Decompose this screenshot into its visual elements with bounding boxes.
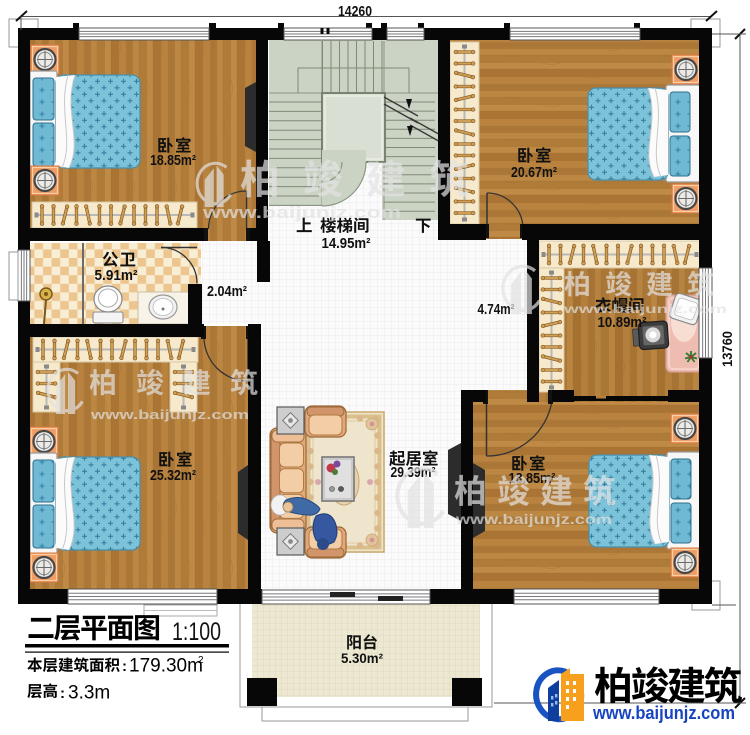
svg-text:2.04m²: 2.04m² [207,284,247,300]
svg-text:www.baijunjz.com: www.baijunjz.com [90,407,249,422]
svg-text:25.32m²: 25.32m² [150,468,196,484]
svg-text:www.baijunjz.com: www.baijunjz.com [562,302,727,316]
svg-text:1:100: 1:100 [172,618,221,646]
svg-text:www.baijunjz.com: www.baijunjz.com [455,511,612,527]
svg-text::: : [60,685,65,702]
svg-text:14260: 14260 [338,3,372,20]
svg-text:20.67m²: 20.67m² [511,165,557,181]
svg-text:13760: 13760 [719,331,735,367]
svg-text:179.30m: 179.30m [129,656,203,677]
svg-text:www.baijunjz.com: www.baijunjz.com [592,703,735,723]
svg-text:10.89m²: 10.89m² [598,315,647,331]
svg-text:14.95m²: 14.95m² [322,236,371,252]
svg-text:www.baijunjz.com: www.baijunjz.com [202,203,401,222]
svg-text:3.3m: 3.3m [68,683,110,704]
svg-text:2: 2 [198,655,204,666]
svg-text::: : [122,658,127,675]
svg-text:5.91m²: 5.91m² [95,268,138,284]
svg-text:5.30m²: 5.30m² [341,651,383,666]
svg-text:18.85m²: 18.85m² [150,153,196,169]
